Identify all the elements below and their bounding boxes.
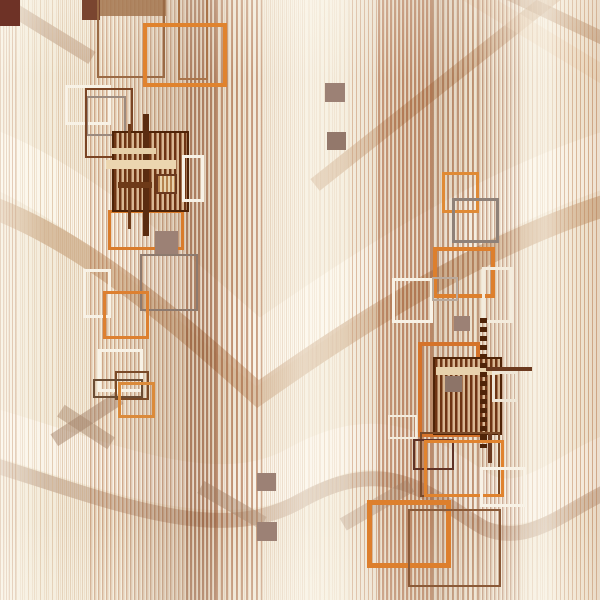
brown-frame-bottom bbox=[408, 509, 501, 587]
orange-frame-bottomright bbox=[424, 440, 504, 497]
shade-band-2 bbox=[197, 481, 266, 529]
stripe-band-10 bbox=[352, 0, 378, 600]
stripe-band-9 bbox=[304, 0, 352, 600]
top-brown-band bbox=[100, 0, 166, 16]
orange-frame-right-top bbox=[442, 172, 479, 213]
white-frame-right-cluster bbox=[492, 371, 518, 402]
orange-frame-right-cluster bbox=[418, 342, 480, 437]
cluster-l-vline-1 bbox=[143, 114, 149, 236]
brown-frame-bottomright bbox=[420, 432, 500, 497]
stripe-band-2 bbox=[16, 0, 58, 600]
maroon-frame-bottomright bbox=[413, 439, 454, 470]
brown-frame-upperleft bbox=[85, 88, 133, 158]
shade-band-3 bbox=[340, 479, 415, 530]
wave-upper-u-tan-band bbox=[0, 198, 600, 394]
right-dark-cluster bbox=[433, 357, 502, 435]
abstract-pattern-canvas bbox=[0, 0, 600, 600]
white-frame-center-small bbox=[388, 415, 417, 439]
brown-frame-lowerleft-2 bbox=[93, 379, 143, 398]
stripe-band-7 bbox=[216, 0, 262, 600]
top-thin-brown-frame bbox=[97, 0, 165, 78]
stripe-band-1 bbox=[0, 0, 16, 600]
dotted-chain bbox=[480, 318, 487, 448]
taupe-square-right bbox=[454, 316, 470, 331]
cluster-r-vline-below bbox=[488, 433, 492, 463]
cluster-l-crossbar-light-2 bbox=[112, 148, 156, 154]
topleft-dark-block bbox=[0, 0, 20, 26]
stripe-band-11 bbox=[378, 0, 432, 600]
taupe-square-bottomcenter-2 bbox=[257, 522, 277, 541]
cluster-l-crossbar-dark bbox=[118, 182, 152, 188]
cluster-l-vline-2 bbox=[128, 124, 131, 229]
white-frame-bottomright bbox=[480, 467, 526, 507]
shade-band-1 bbox=[57, 405, 115, 449]
shade-band-0 bbox=[50, 392, 123, 446]
brightness-overlay bbox=[0, 0, 600, 600]
wave-upper-u-highlight bbox=[0, 150, 600, 352]
taupe-square-topcenter-2 bbox=[327, 132, 346, 150]
stripe-band-4 bbox=[90, 0, 130, 600]
white-frame-right-mid bbox=[392, 278, 433, 323]
stripe-band-12 bbox=[432, 0, 478, 600]
wave-topright-diagonal-falling bbox=[490, 0, 600, 52]
stripe-band-15 bbox=[556, 0, 600, 600]
top-brown-block bbox=[82, 0, 100, 20]
gray-frame-midleft bbox=[140, 254, 198, 311]
gray-frame-right-small bbox=[432, 277, 458, 301]
left-dark-cluster bbox=[112, 131, 189, 212]
orange-frame-below-cluster bbox=[108, 210, 184, 250]
wave-lower-wave-tan-band bbox=[0, 458, 600, 533]
gray-frame-right bbox=[452, 198, 499, 243]
cluster-r-crossbar-light bbox=[436, 367, 499, 375]
stripe-band-5 bbox=[130, 0, 186, 600]
stripe-band-14 bbox=[522, 0, 556, 600]
cluster-l-crossbar-light bbox=[106, 160, 176, 169]
stripe-band-6 bbox=[186, 0, 216, 600]
white-frame-right-tall bbox=[482, 267, 513, 323]
top-thin-brown-frame-2 bbox=[178, 0, 208, 80]
taupe-square-topcenter-1 bbox=[325, 83, 345, 102]
orange-frame-right-mid bbox=[433, 247, 495, 298]
wave-topright-diagonal-light bbox=[455, 0, 600, 92]
stripe-band-13 bbox=[478, 0, 522, 600]
orange-frame-bottom-thick bbox=[367, 500, 451, 568]
white-frame-lowerleft bbox=[98, 349, 143, 392]
wave-topleft-diagonal bbox=[0, 0, 92, 58]
stripe-band-0 bbox=[0, 0, 600, 600]
stripe-band-8 bbox=[262, 0, 304, 600]
brown-frame-lowerleft bbox=[115, 371, 149, 400]
wave-bands-layer bbox=[0, 0, 600, 600]
wave-topright-diagonal-rising bbox=[315, 0, 580, 185]
cluster-l-inner-square bbox=[156, 174, 177, 194]
wave-lower-wave-highlight bbox=[0, 425, 600, 501]
cluster-r-inner-taupe bbox=[445, 376, 462, 392]
stripe-band-3 bbox=[58, 0, 90, 600]
white-frame-upperleft bbox=[65, 85, 111, 125]
cluster-r-hline bbox=[486, 367, 532, 371]
white-frame-midleft bbox=[83, 269, 111, 318]
top-orange-square bbox=[143, 23, 227, 87]
taupe-square-bottomcenter-1 bbox=[257, 473, 276, 491]
orange-frame-midleft bbox=[103, 291, 149, 339]
taupe-square-left bbox=[155, 231, 178, 255]
gray-frame-upperleft bbox=[86, 96, 126, 136]
orange-frame-lowerleft bbox=[118, 382, 155, 418]
white-frame-right-of-cluster bbox=[182, 155, 204, 202]
